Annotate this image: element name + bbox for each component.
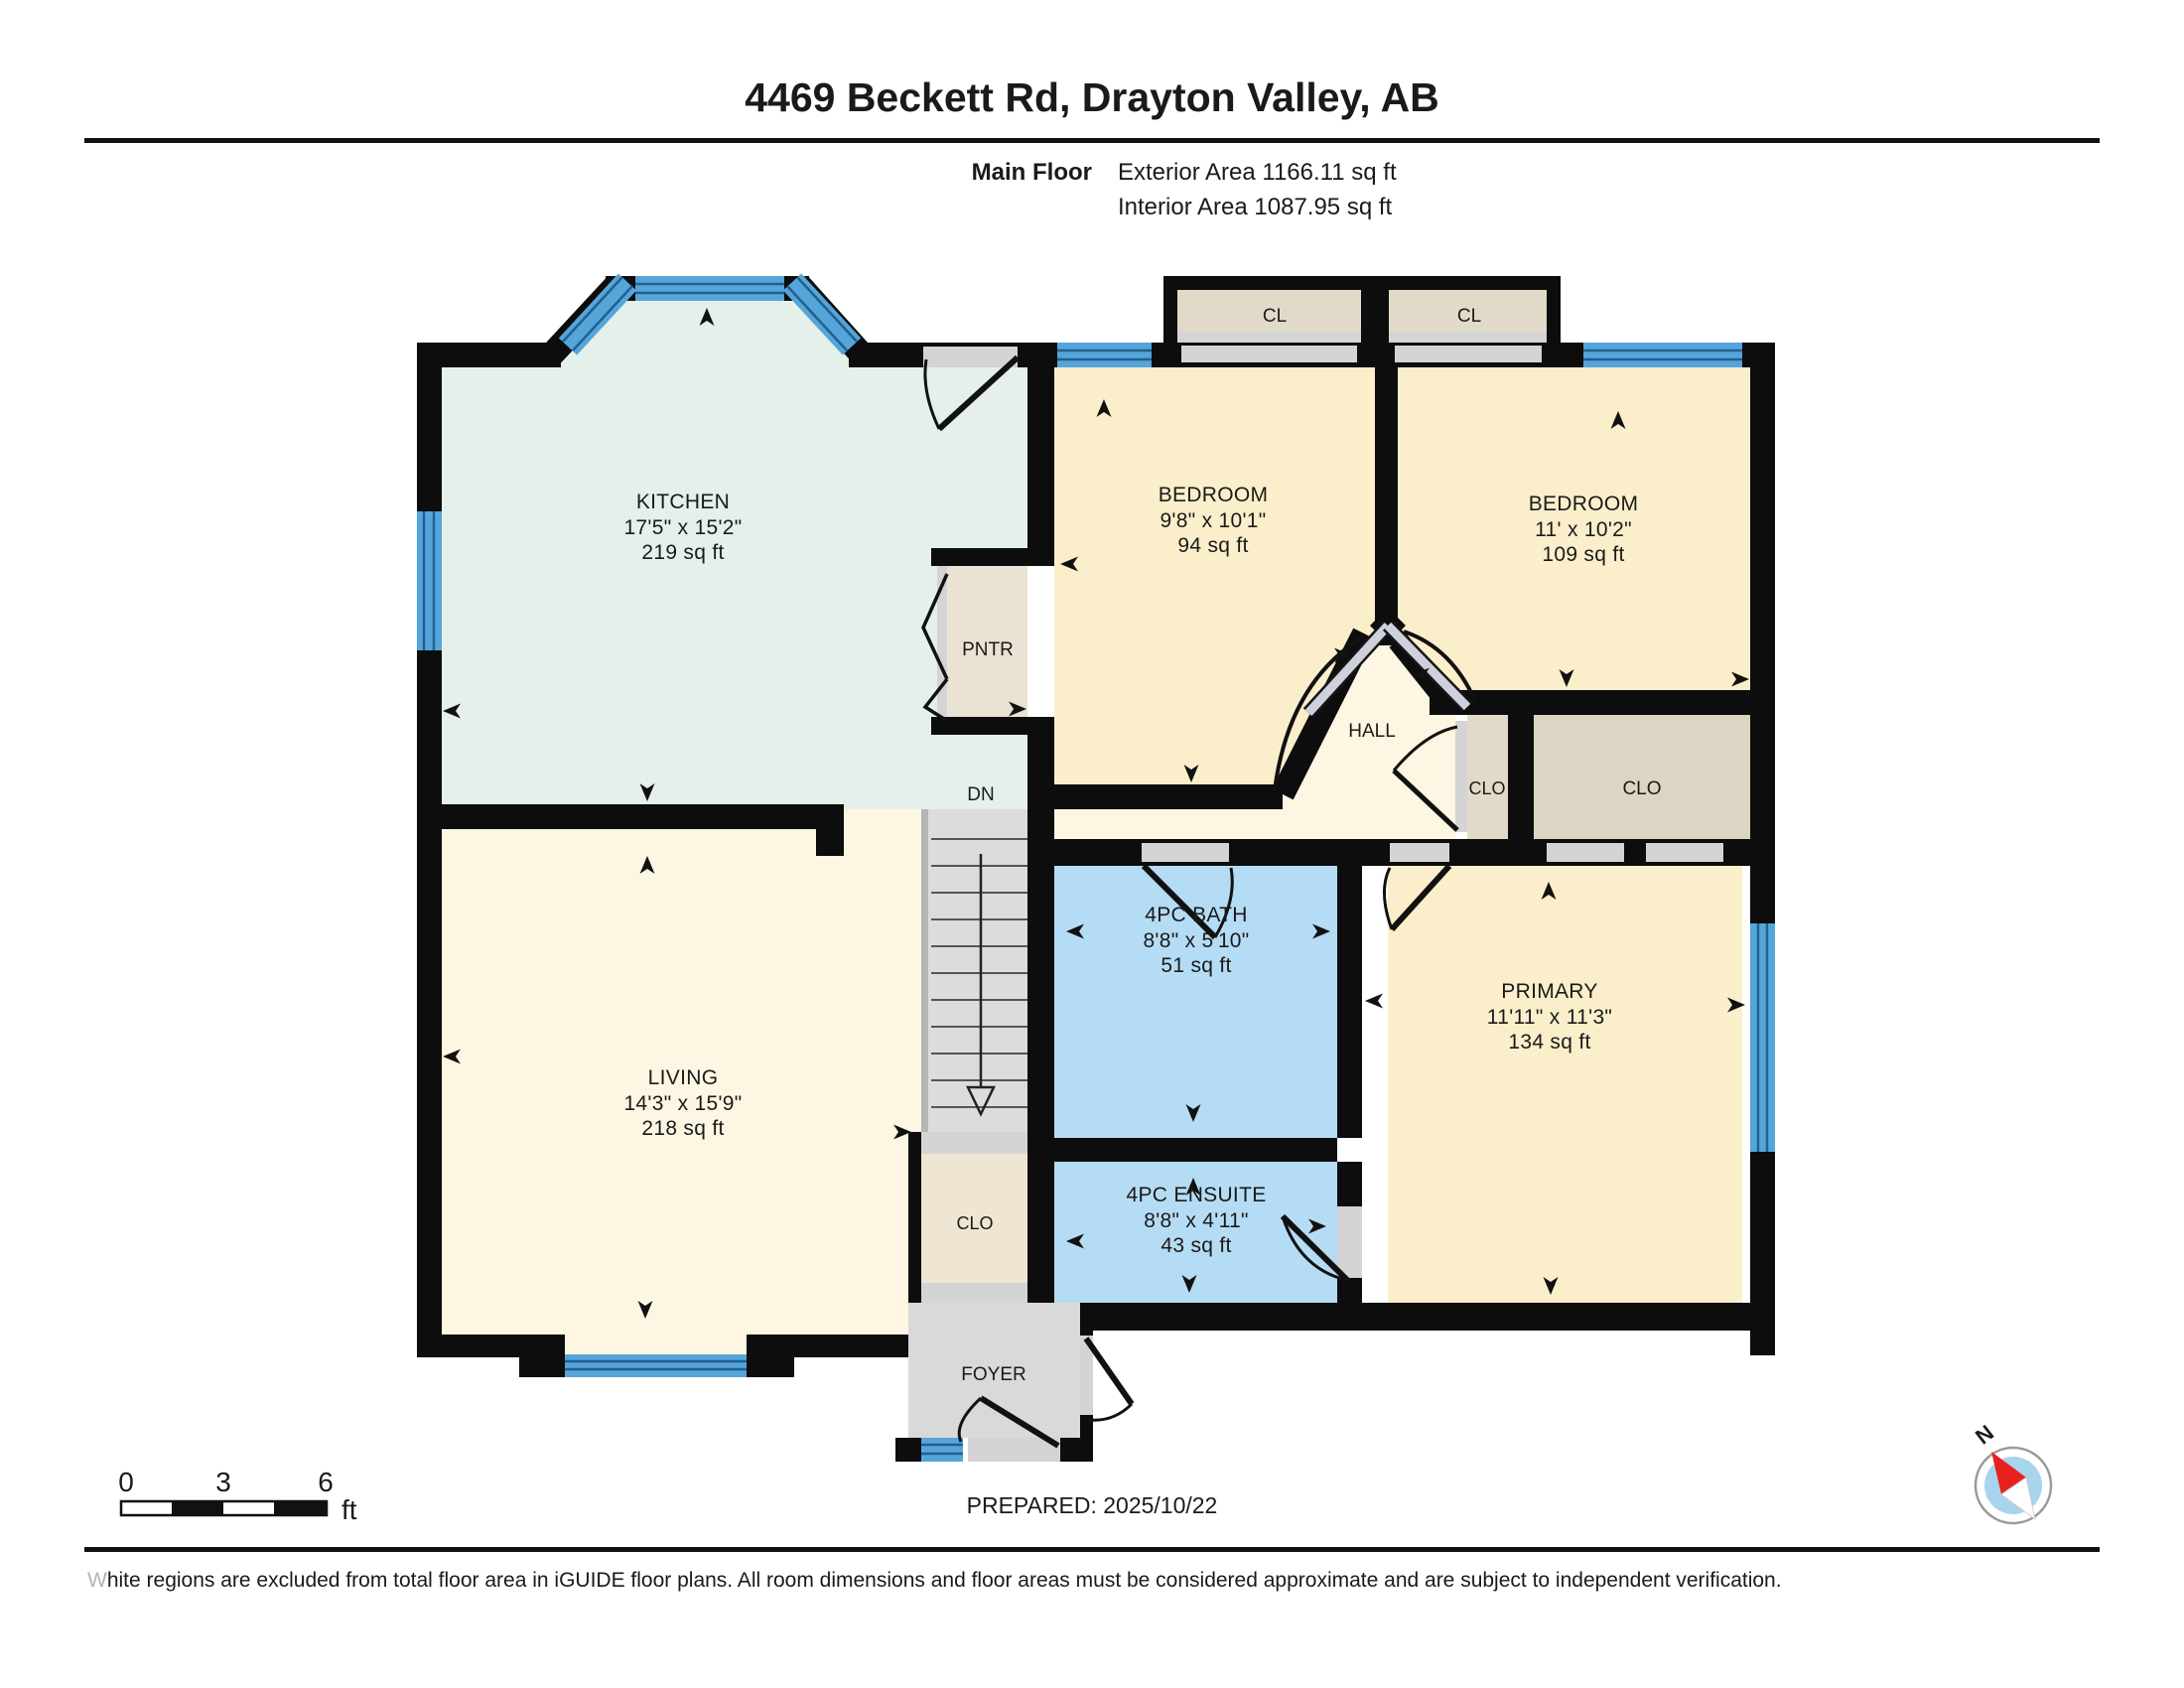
bedroom2-label: BEDROOM: [1529, 492, 1639, 515]
scale-bar-seg1: [172, 1501, 223, 1515]
primary-floor: [1388, 866, 1742, 1303]
scale-bar-seg2: [274, 1501, 327, 1515]
bedroom2-window: [1583, 343, 1742, 367]
bedroom1-label: BEDROOM: [1159, 484, 1269, 506]
cl1-label: CL: [1263, 306, 1287, 327]
clo-hall-label: CLO: [1468, 778, 1505, 798]
bath-dims: 8'8" x 5'10": [1143, 929, 1249, 952]
scale-tick-0: 0: [118, 1467, 134, 1497]
scale-tick-3: 3: [215, 1467, 231, 1497]
foyer-sidelite-window: [921, 1438, 963, 1462]
kitchen-label: KITCHEN: [636, 491, 730, 513]
kitchen-area: 219 sq ft: [641, 541, 724, 564]
interior-area-label: Interior Area 1087.95 sq ft: [1118, 194, 1393, 220]
clo-bedroom-label: CLO: [1622, 778, 1661, 799]
prepared-date: PREPARED: 2025/10/22: [967, 1492, 1218, 1518]
kitchen-dims: 17'5" x 15'2": [623, 516, 742, 539]
scale-bar: 0 3 6 ft: [118, 1467, 357, 1525]
page-title: 4469 Beckett Rd, Drayton Valley, AB: [745, 74, 1439, 120]
floor-label: Main Floor: [972, 159, 1092, 186]
compass: N: [1971, 1420, 2051, 1523]
pantry-label: PNTR: [962, 639, 1014, 660]
clo-stairs-label: CLO: [956, 1213, 993, 1233]
disclaimer-rest: hite regions are excluded from total flo…: [107, 1569, 1782, 1592]
header-divider: [84, 138, 2100, 143]
bedroom1-area: 94 sq ft: [1177, 534, 1248, 557]
stairs-dn-label: DN: [967, 784, 994, 805]
compass-n-label: N: [1971, 1420, 1998, 1449]
floorplan-page: 4469 Beckett Rd, Drayton Valley, AB Main…: [0, 0, 2184, 1688]
bedroom2-area: 109 sq ft: [1542, 543, 1624, 566]
primary-dims: 11'11" x 11'3": [1487, 1006, 1612, 1029]
living-area: 218 sq ft: [641, 1117, 724, 1140]
kitchen-left-window: [417, 511, 442, 650]
bedroom2-dims: 11' x 10'2": [1535, 518, 1632, 541]
exterior-area-label: Exterior Area 1166.11 sq ft: [1118, 159, 1397, 186]
floorplan-svg: 4469 Beckett Rd, Drayton Valley, AB Main…: [0, 0, 2184, 1688]
hall-label: HALL: [1348, 721, 1396, 742]
ensuite-area: 43 sq ft: [1160, 1234, 1231, 1257]
bath-label: 4PC BATH: [1145, 904, 1248, 926]
primary-label: PRIMARY: [1501, 980, 1597, 1003]
bedroom1-dims: 9'8" x 10'1": [1160, 509, 1266, 532]
closet-bedroom-floor: [1534, 715, 1750, 839]
disclaimer-first-letter: W: [87, 1569, 107, 1592]
bedroom1-window: [1057, 343, 1152, 367]
disclaimer-text: White regions are excluded from total fl…: [87, 1569, 1782, 1592]
primary-area: 134 sq ft: [1508, 1031, 1590, 1054]
living-bay-floor: [565, 1335, 747, 1356]
scale-unit: ft: [341, 1494, 357, 1525]
living-bay-window: [565, 1354, 747, 1377]
ensuite-dims: 8'8" x 4'11": [1144, 1209, 1249, 1232]
bath-area: 51 sq ft: [1160, 954, 1231, 977]
ensuite-label: 4PC ENSUITE: [1127, 1184, 1267, 1206]
foyer-label: FOYER: [961, 1364, 1025, 1385]
living-label: LIVING: [648, 1066, 719, 1089]
living-dims: 14'3" x 15'9": [623, 1092, 742, 1115]
cl2-label: CL: [1457, 306, 1481, 327]
primary-window: [1750, 923, 1775, 1152]
footer-divider: [84, 1547, 2100, 1552]
closet-hall-floor: [1467, 715, 1508, 839]
scale-tick-6: 6: [318, 1467, 334, 1497]
